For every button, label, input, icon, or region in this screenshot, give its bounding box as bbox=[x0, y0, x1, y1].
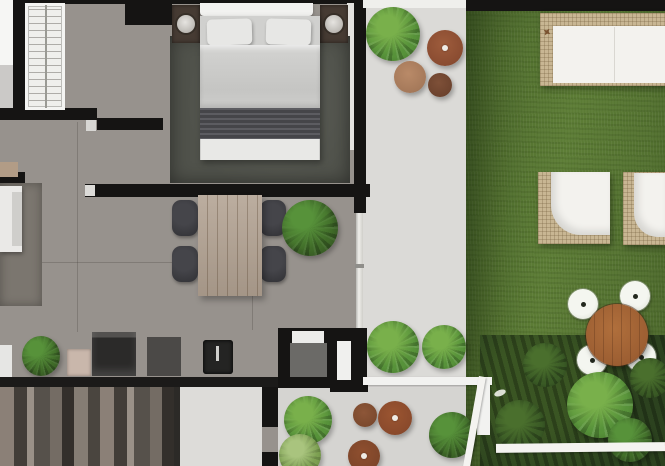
bathroom-floor bbox=[290, 343, 327, 377]
patio-side-table-small bbox=[428, 73, 452, 97]
fridge bbox=[0, 345, 12, 377]
lower-table-large bbox=[378, 401, 412, 435]
patio-shrub bbox=[367, 321, 419, 373]
wardrobe bbox=[25, 3, 65, 110]
bed-shrub bbox=[523, 343, 567, 387]
armchair-right-cushion bbox=[634, 173, 665, 237]
side-table bbox=[0, 162, 18, 177]
chair-center bbox=[633, 294, 638, 299]
round-garden-table bbox=[586, 304, 648, 366]
fence-horizontal bbox=[496, 442, 665, 453]
dining-chair bbox=[172, 246, 198, 282]
patio-plant-large bbox=[366, 7, 420, 61]
dining-chair bbox=[172, 200, 198, 236]
cooktop bbox=[67, 349, 91, 376]
faucet bbox=[216, 346, 219, 361]
armchair-left-cushion bbox=[551, 172, 610, 235]
exterior-margin bbox=[0, 0, 13, 65]
oven bbox=[92, 332, 136, 376]
staircase bbox=[0, 387, 178, 466]
bedside-lamp-left bbox=[177, 15, 195, 33]
wall-left bbox=[13, 0, 25, 112]
patio-side-table-red bbox=[427, 30, 463, 66]
bed-shrub-mid bbox=[608, 418, 652, 462]
patio-side-table-tan bbox=[394, 61, 426, 93]
dining-table bbox=[198, 195, 262, 296]
pillow-left bbox=[207, 18, 253, 45]
bed-headboard bbox=[200, 3, 313, 16]
chair-center bbox=[590, 358, 595, 363]
patio-top-strip bbox=[363, 0, 467, 8]
wall-top-block bbox=[125, 0, 172, 25]
pillow-right bbox=[266, 18, 312, 45]
patio-shrub bbox=[422, 325, 466, 369]
lower-wall-lower bbox=[262, 452, 278, 466]
floor-plan-render bbox=[0, 0, 665, 466]
lower-room-floor bbox=[180, 387, 262, 466]
indoor-plant bbox=[282, 200, 338, 256]
sofa-cushions bbox=[12, 192, 22, 246]
appliance-box bbox=[147, 337, 181, 376]
door-jamb bbox=[85, 185, 95, 196]
table-lamp-dot bbox=[392, 415, 398, 421]
window-left bbox=[0, 65, 13, 112]
table-lamp-dot bbox=[361, 453, 367, 459]
bed-shrub bbox=[630, 358, 665, 398]
wall-below-wardrobe-step bbox=[97, 118, 163, 130]
bed-foot-sheet bbox=[201, 139, 319, 160]
bathroom-door bbox=[337, 341, 351, 380]
dining-chair bbox=[260, 246, 286, 282]
floor-seam bbox=[77, 122, 78, 332]
glass-mullion bbox=[355, 264, 364, 268]
lower-table-bottom bbox=[348, 440, 380, 466]
garden-daybed-cushion bbox=[553, 26, 665, 83]
wall-top-right bbox=[466, 0, 665, 11]
door-jamb bbox=[86, 120, 96, 131]
kitchen-plant bbox=[22, 336, 60, 376]
pod-bottom-edge bbox=[330, 385, 368, 392]
kitchen-counter-edge bbox=[0, 377, 282, 387]
daybed-cushion-seam bbox=[614, 27, 615, 82]
lower-table-small bbox=[353, 403, 377, 427]
wall-right-vertical bbox=[354, 0, 366, 213]
bed-duvet bbox=[200, 45, 320, 109]
bedside-lamp-right bbox=[325, 15, 343, 33]
wardrobe-divider bbox=[45, 5, 47, 108]
bed-striped-blanket bbox=[200, 108, 320, 139]
lower-wall-upper bbox=[262, 387, 278, 427]
chair-center bbox=[581, 302, 586, 307]
bathroom-sink bbox=[292, 331, 324, 343]
table-lamp-dot bbox=[442, 45, 448, 51]
railing-horizontal bbox=[363, 377, 492, 385]
